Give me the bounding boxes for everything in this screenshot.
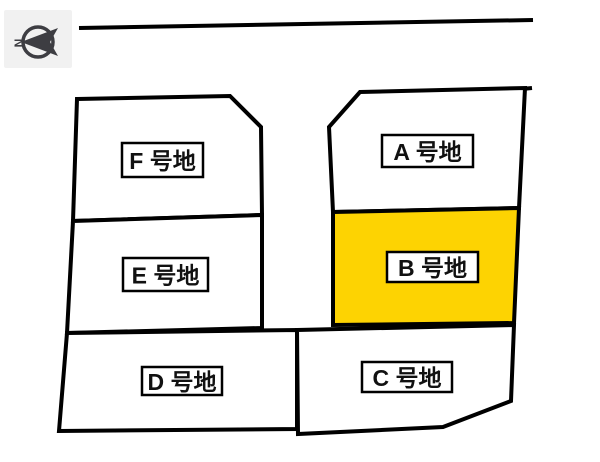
plot-F-label: F 号地 <box>129 148 195 174</box>
plots: F 号地E 号地D 号地A 号地B 号地C 号地 <box>59 88 525 434</box>
road-lines <box>79 20 533 89</box>
plot-D: D 号地 <box>59 330 297 431</box>
plot-B: B 号地 <box>333 208 519 325</box>
plot-B-label: B 号地 <box>398 255 467 281</box>
plot-C-label: C 号地 <box>373 365 442 391</box>
plot-D-label: D 号地 <box>148 369 217 395</box>
plot-E: E 号地 <box>67 215 262 333</box>
plot-F: F 号地 <box>73 96 262 221</box>
lot-layout-map: N F 号地E 号地D 号地A 号地B 号地C 号地 <box>0 0 600 462</box>
compass-north-letter: N <box>12 39 26 48</box>
lot-layout-svg: N F 号地E 号地D 号地A 号地B 号地C 号地 <box>0 0 600 462</box>
plot-A-label: A 号地 <box>393 139 461 165</box>
plot-C: C 号地 <box>297 325 514 434</box>
plot-E-label: E 号地 <box>132 263 200 289</box>
north-compass: N <box>4 10 72 68</box>
top-road-line <box>79 20 533 28</box>
plot-A: A 号地 <box>329 88 525 212</box>
